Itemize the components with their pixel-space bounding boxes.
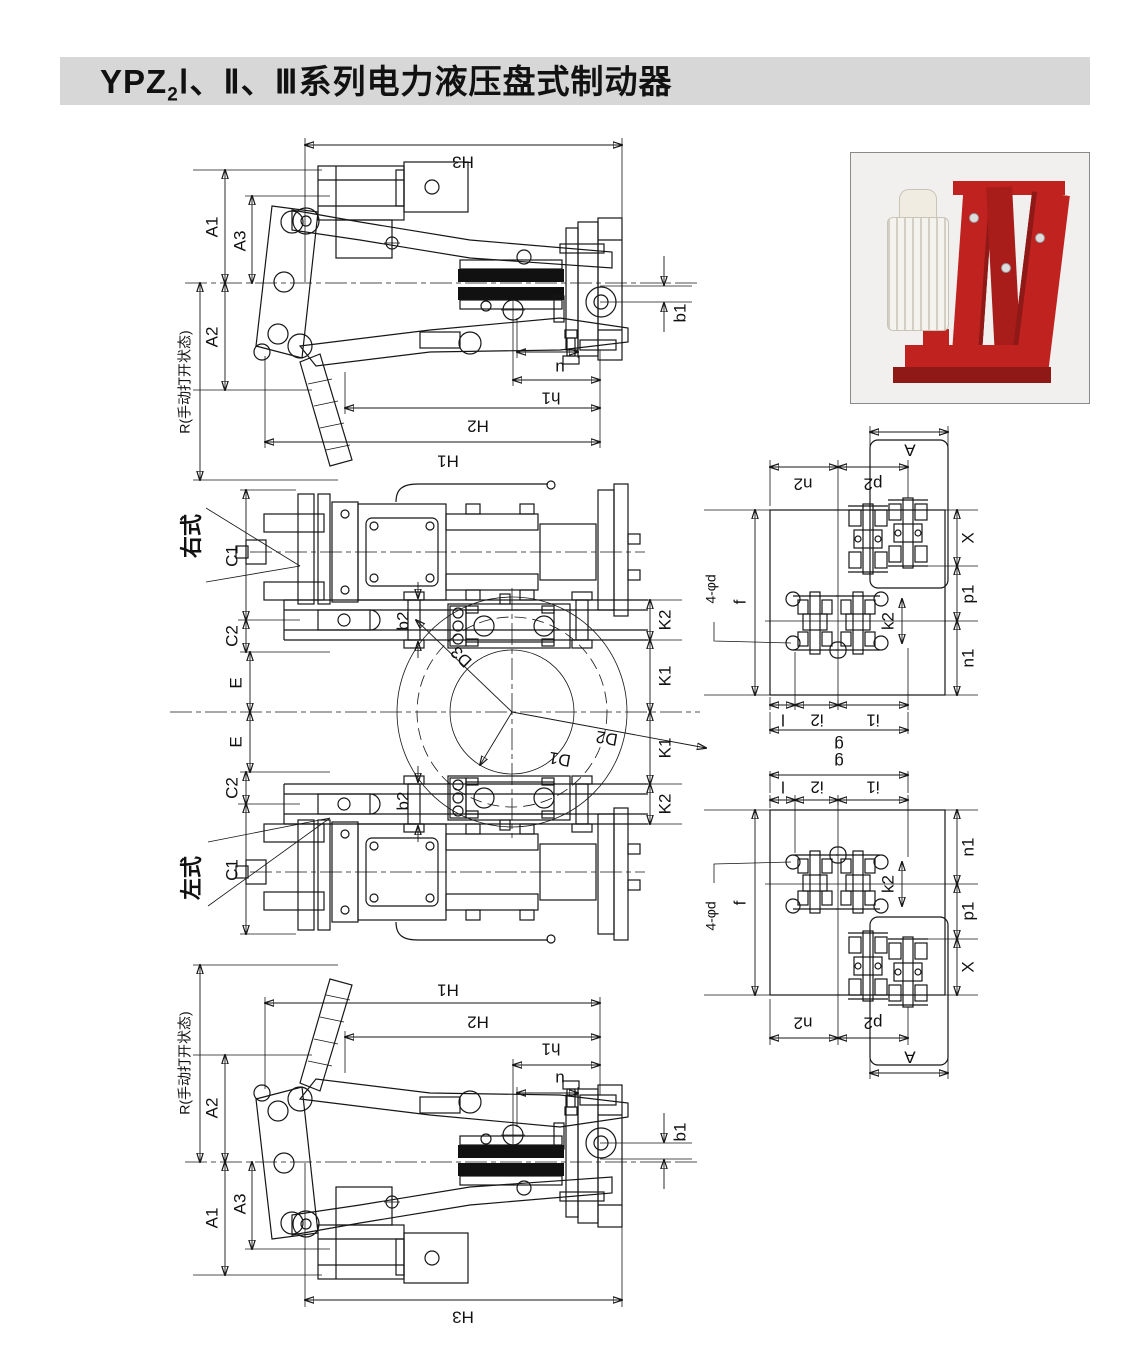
- mounting-flange-top-drawing: [704, 426, 978, 734]
- plan-view-labels: 右式 左式 C1 C2 E E C2 C1 b2 b2 K2 K1 K1 K2 …: [179, 514, 675, 900]
- dim-label-a2-bottom: A2: [202, 1098, 221, 1119]
- dim-label-phid-upper: 4-φd: [703, 574, 719, 603]
- dim-label-a1-bottom: A1: [202, 1208, 221, 1229]
- dim-label-c2-lower: C2: [222, 777, 241, 799]
- dim-label-i1-lower: i1: [866, 778, 879, 797]
- dim-label-a3-bottom: A3: [230, 1194, 249, 1215]
- dim-label-x-lower: X: [958, 961, 977, 972]
- dim-label-k2-lower: K2: [655, 794, 674, 815]
- dim-label-h1-top: H1: [437, 452, 459, 471]
- dim-label-k2small-upper: k2: [878, 612, 897, 630]
- dim-label-l-lower: l: [781, 778, 785, 797]
- dim-label-n2-lower: n2: [794, 1014, 813, 1033]
- dim-label-h2-bottom: H2: [467, 1013, 489, 1032]
- dim-label-x-upper: X: [958, 532, 977, 543]
- dim-label-l-upper: l: [781, 711, 785, 730]
- label-left-type: 左式: [179, 856, 204, 900]
- dim-label-i1-upper: i1: [866, 711, 879, 730]
- dim-label-a2-top: A2: [202, 327, 221, 348]
- dim-label-r-bottom: R(手动打开状态): [177, 1011, 193, 1114]
- dim-label-h1small-bottom: h1: [542, 1040, 561, 1059]
- dim-label-d1: D1: [547, 748, 572, 770]
- dim-label-f-lower: f: [730, 900, 749, 905]
- mounting-flange-bottom-drawing: [704, 771, 978, 1079]
- dim-label-d2: D2: [594, 727, 619, 749]
- dim-label-e-lower: E: [226, 736, 245, 747]
- dim-label-A-upper: A: [904, 441, 916, 460]
- dim-label-b1-top: b1: [670, 304, 689, 323]
- dim-label-h2-top: H2: [467, 417, 489, 436]
- catalog-page: YPZ2Ⅰ、Ⅱ、Ⅲ系列电力液压盘式制动器: [0, 0, 1145, 1355]
- dim-label-phid-lower: 4-φd: [703, 901, 719, 930]
- dim-label-n1-upper: n1: [958, 649, 977, 668]
- dim-label-h3-bottom: H3: [452, 1308, 474, 1327]
- dim-label-c1-lower: C1: [222, 859, 241, 881]
- side-view-top-drawing: [185, 138, 700, 480]
- dim-label-p2-upper: p2: [864, 475, 883, 494]
- dim-label-p2-lower: p2: [864, 1014, 883, 1033]
- label-right-type: 右式: [179, 514, 204, 558]
- dim-label-k2small-lower: k2: [878, 875, 897, 893]
- dim-label-i2-upper: i2: [810, 711, 823, 730]
- dim-label-c1-upper: C1: [222, 545, 241, 567]
- dim-label-g-upper: g: [834, 736, 843, 755]
- dim-label-k1-upper: K1: [655, 666, 674, 687]
- dim-label-c2-upper: C2: [222, 625, 241, 647]
- dim-label-n2-upper: n2: [794, 475, 813, 494]
- dim-label-n1-lower: n1: [958, 838, 977, 857]
- engineering-drawing-canvas: H3 A1 A3 A2 R(手动打开状态) b1 u h1 H2 H1 右式 左…: [0, 0, 1145, 1355]
- dim-label-g-lower: g: [834, 753, 843, 772]
- side-view-bottom-drawing: [185, 965, 700, 1307]
- dim-label-b2-lower: b2: [393, 792, 412, 811]
- dim-label-b2-upper: b2: [393, 612, 412, 631]
- dim-label-d3: D3: [447, 642, 476, 671]
- dim-label-r-top: R(手动打开状态): [177, 330, 193, 433]
- dim-label-i2-lower: i2: [810, 778, 823, 797]
- dim-label-k2-upper: K2: [655, 610, 674, 631]
- dim-label-h1-bottom: H1: [437, 981, 459, 1000]
- dim-label-A-lower: A: [904, 1048, 916, 1067]
- dim-label-p1-lower: p1: [958, 902, 977, 921]
- dim-label-b1-bottom: b1: [670, 1123, 689, 1142]
- flange-top-labels: A n2 p2 f 4-φd X p1 n1 k2 l i2 i1 g: [703, 441, 978, 755]
- dim-label-h1small-top: h1: [542, 389, 561, 408]
- dim-label-a1-top: A1: [202, 217, 221, 238]
- dim-label-h3-top: H3: [452, 153, 474, 172]
- dim-label-u-top: u: [555, 359, 564, 378]
- dim-label-f-upper: f: [730, 599, 749, 604]
- dim-label-p1-upper: p1: [958, 585, 977, 604]
- plan-view-right-type-drawing: [236, 481, 682, 712]
- dim-label-k1-lower: K1: [655, 738, 674, 759]
- dim-label-a3-top: A3: [230, 231, 249, 252]
- dim-label-e-upper: E: [226, 677, 245, 688]
- dim-label-u-bottom: u: [555, 1070, 564, 1089]
